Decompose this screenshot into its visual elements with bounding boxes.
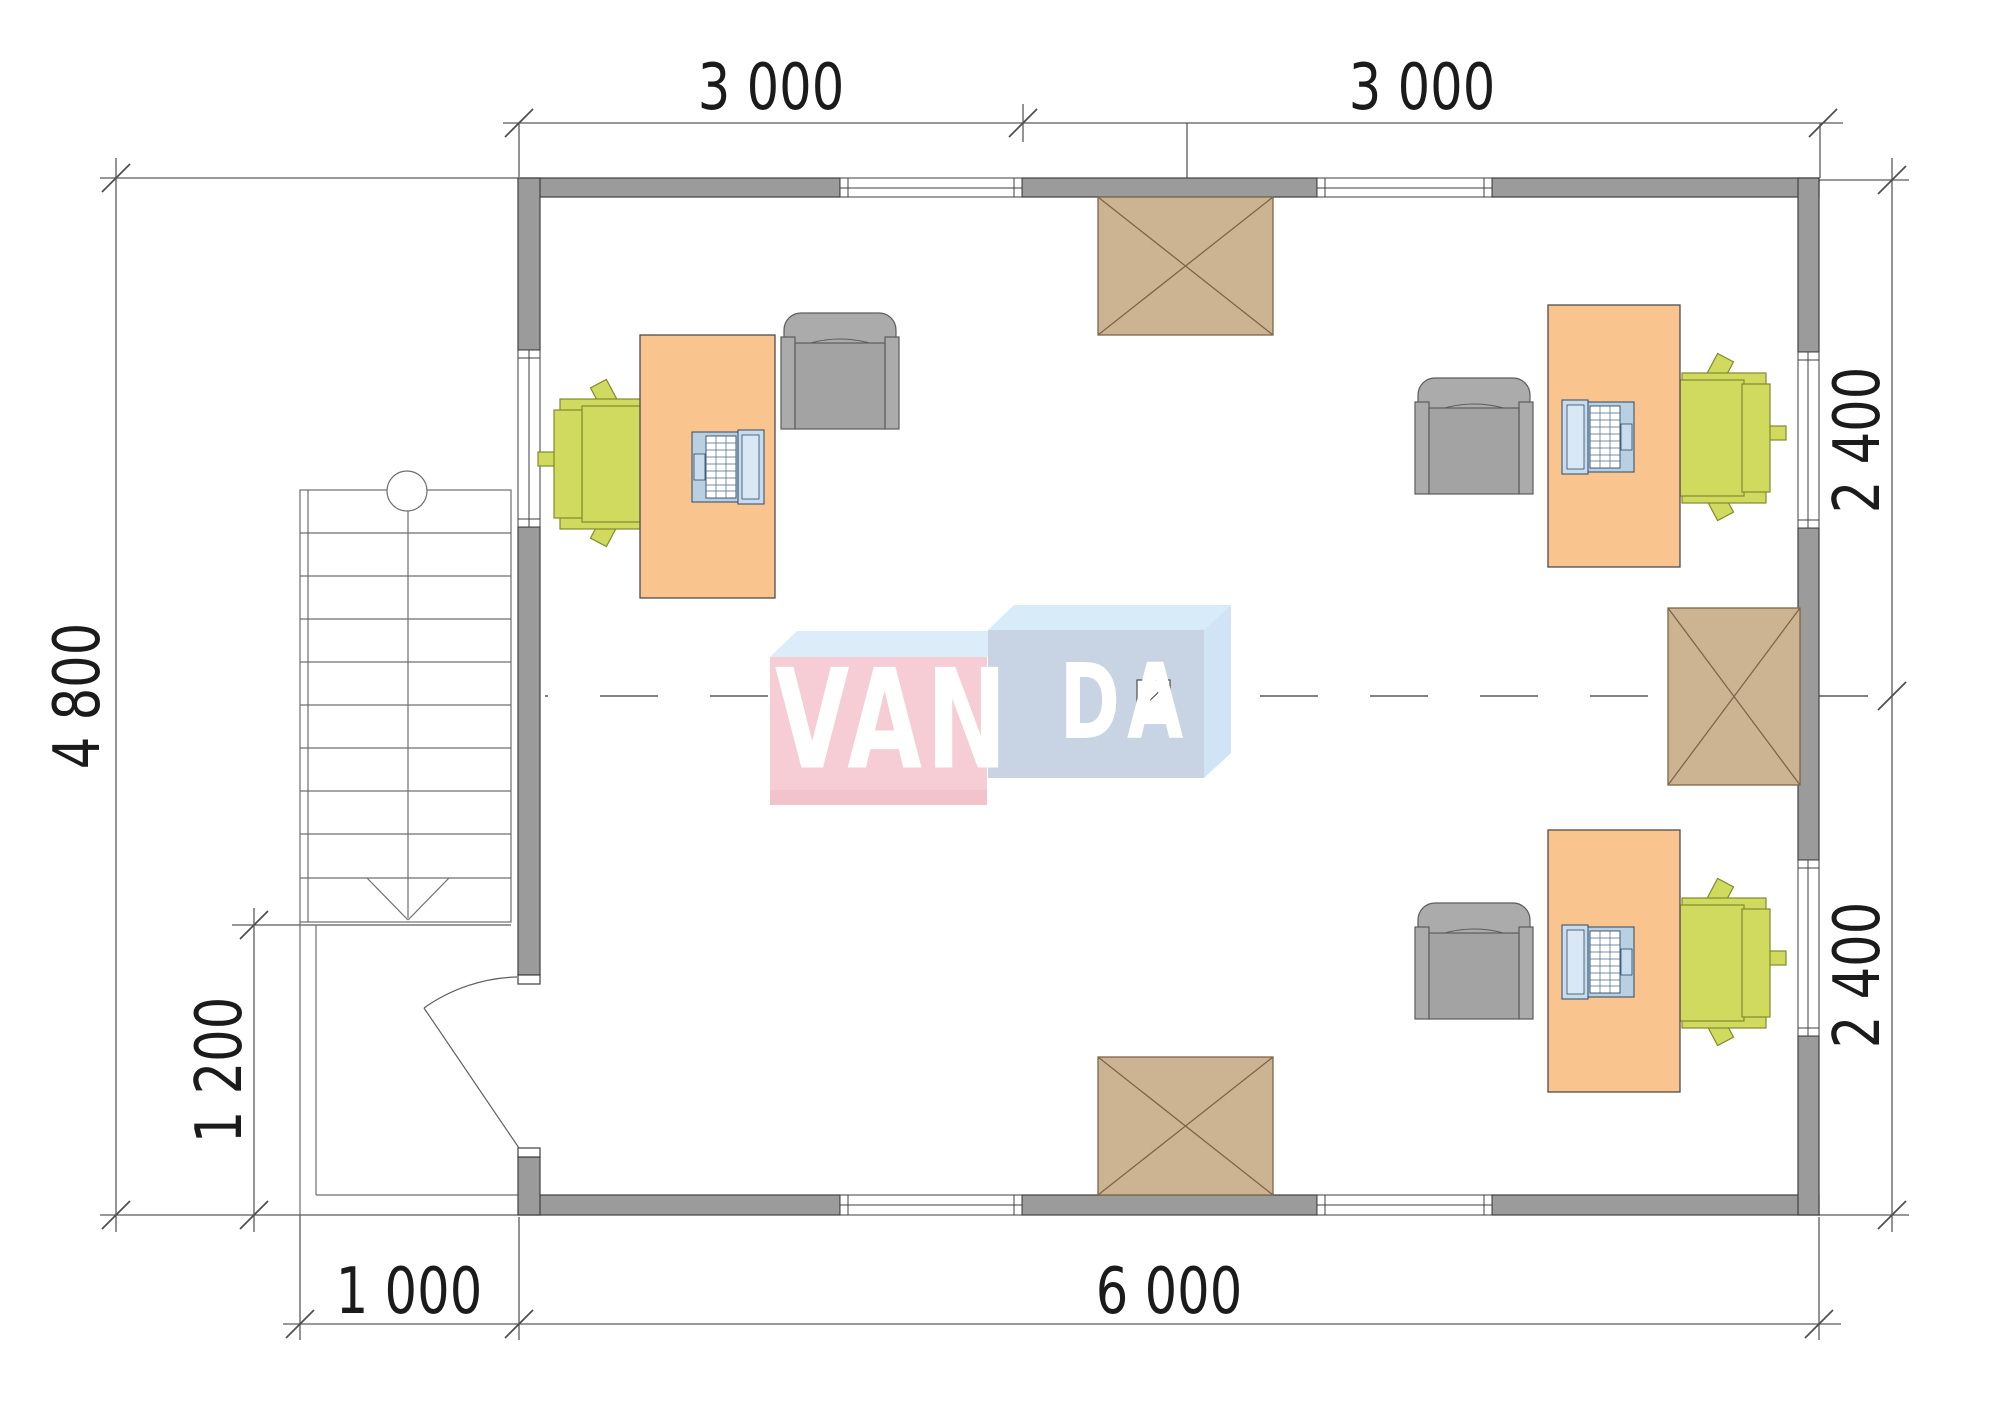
- window-top-left: [840, 178, 1022, 197]
- window-right-upper: [1798, 352, 1819, 528]
- chair-gray-right-bottom: [1415, 903, 1533, 1019]
- logo-blue-top-face: [988, 605, 1231, 630]
- laptop-left: [692, 430, 764, 504]
- dim-right-upper-label: 2 400: [1821, 367, 1895, 514]
- skylight-top: [1098, 197, 1273, 335]
- logo-blue-side-face: [1204, 605, 1231, 778]
- chair-green-right-top: [1680, 353, 1786, 520]
- staircase: [300, 471, 511, 922]
- workstation-left: [538, 313, 899, 598]
- dim-bottom-porch-label: 1 000: [336, 1255, 483, 1329]
- workstation-right-top: [1415, 305, 1786, 567]
- chair-green-left: [538, 379, 646, 546]
- dim-stair-bay-label: 1 200: [183, 997, 257, 1144]
- porch-outline: [300, 922, 518, 1215]
- laptop-right-top: [1562, 400, 1634, 474]
- window-top-right: [1317, 178, 1492, 197]
- entry-door: [424, 975, 540, 1157]
- dim-top-left-label: 3 000: [698, 51, 845, 125]
- chair-gray-left: [781, 313, 899, 429]
- floor-plan-canvas: 3 000 3 000 4 800 1 200 2 400 2 400 1 00…: [0, 0, 2000, 1410]
- dim-bottom-main-label: 6 000: [1096, 1255, 1243, 1329]
- chair-gray-right-top: [1415, 378, 1533, 494]
- skylight-bottom: [1098, 1057, 1273, 1195]
- stair-column-circle: [387, 471, 427, 511]
- skylight-right: [1668, 608, 1800, 785]
- wall-top: [519, 178, 840, 197]
- door-leaf: [424, 1008, 519, 1148]
- chair-green-right-bottom: [1680, 878, 1786, 1045]
- workstation-right-bottom: [1415, 830, 1786, 1092]
- logo-text-da: DA: [1060, 641, 1191, 763]
- door-swing-arc: [424, 977, 517, 1008]
- wall-left: [518, 178, 540, 350]
- window-bottom-left: [840, 1195, 1022, 1215]
- window-right-lower: [1798, 860, 1819, 1036]
- logo-text-van: VAN: [775, 640, 1011, 801]
- dim-right-lower-label: 2 400: [1821, 902, 1895, 1049]
- laptop-right-bottom: [1562, 925, 1634, 999]
- window-left: [518, 350, 540, 527]
- dim-top-right-label: 3 000: [1349, 51, 1496, 125]
- window-bottom-right: [1317, 1195, 1492, 1215]
- wall-bottom: [519, 1195, 840, 1215]
- dim-left-label: 4 800: [41, 623, 115, 770]
- wall-right: [1798, 178, 1819, 352]
